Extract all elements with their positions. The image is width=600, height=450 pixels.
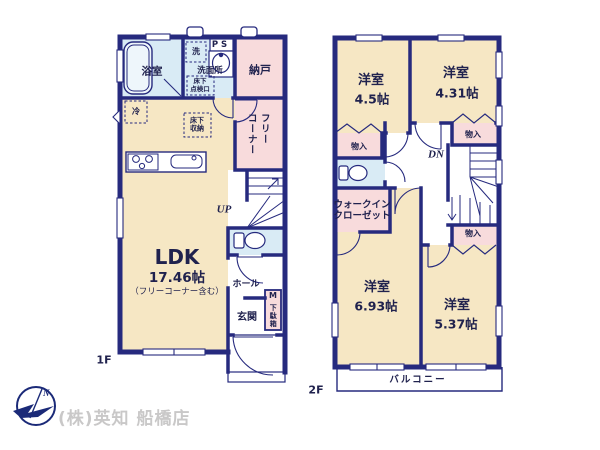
toilet-2f-icon bbox=[339, 166, 367, 181]
toilet-1f-icon bbox=[234, 233, 265, 249]
label-closet-a: 物入 bbox=[351, 142, 367, 152]
label-room-a: 洋室 bbox=[358, 73, 384, 89]
label-floor2: 2F bbox=[308, 383, 323, 396]
label-wic: ウォークイン クローゼット bbox=[333, 200, 390, 223]
label-floor1: 1F bbox=[96, 353, 111, 366]
label-underfloor-storage: 床下 収納 bbox=[190, 117, 204, 134]
svg-text:N: N bbox=[42, 388, 50, 398]
label-room-a-size: 4.5帖 bbox=[355, 92, 390, 107]
label-entrance: 玄関 bbox=[237, 312, 257, 324]
label-underfloor-access: 床下 点検口 bbox=[190, 78, 210, 94]
label-room-d: 洋室 bbox=[444, 298, 470, 314]
label-washer: 洗 bbox=[192, 47, 200, 57]
label-stairs-down: DN bbox=[428, 148, 444, 161]
label-room-d-size: 5.37帖 bbox=[434, 317, 477, 332]
floorplan-page: N 浴室 洗 PS 洗面所 床下 点検口 納戸 冷 床下 収納 フリー コーナー… bbox=[0, 0, 600, 450]
label-closet-c: 物入 bbox=[465, 229, 481, 239]
label-ldk: LDK bbox=[155, 245, 200, 269]
kitchen-icon bbox=[126, 152, 206, 172]
label-closet-b: 物入 bbox=[465, 130, 481, 140]
label-ps: PS bbox=[212, 40, 230, 50]
label-ldk-size: 17.46帖 bbox=[149, 270, 205, 286]
stairs-1f bbox=[247, 178, 285, 228]
compass-logo-icon: N bbox=[13, 387, 55, 425]
label-ldk-note: （フリーコーナー含む） bbox=[130, 287, 224, 297]
label-stairs-up: UP bbox=[217, 203, 232, 216]
label-balcony: バルコニー bbox=[389, 374, 446, 385]
floorplan-canvas: N bbox=[0, 0, 600, 450]
label-storeroom: 納戸 bbox=[249, 63, 271, 76]
label-room-b: 洋室 bbox=[443, 66, 469, 82]
stairs-2f bbox=[448, 145, 499, 225]
label-room-c: 洋室 bbox=[364, 280, 390, 296]
label-free-corner-2: コーナー bbox=[245, 113, 256, 155]
label-free-corner-1: フリー bbox=[258, 113, 269, 145]
label-shoe-m: M bbox=[269, 291, 277, 301]
label-washroom: 洗面所 bbox=[197, 66, 223, 76]
label-room-c-size: 6.93帖 bbox=[354, 299, 397, 314]
label-fridge: 冷 bbox=[132, 107, 140, 117]
label-room-b-size: 4.31帖 bbox=[435, 86, 478, 101]
label-shoe-box: 下駄箱 bbox=[269, 304, 277, 328]
company-name: (株)英知 船橋店 bbox=[58, 404, 190, 429]
label-hall: ホール bbox=[232, 280, 259, 291]
label-bath: 浴室 bbox=[142, 66, 163, 79]
